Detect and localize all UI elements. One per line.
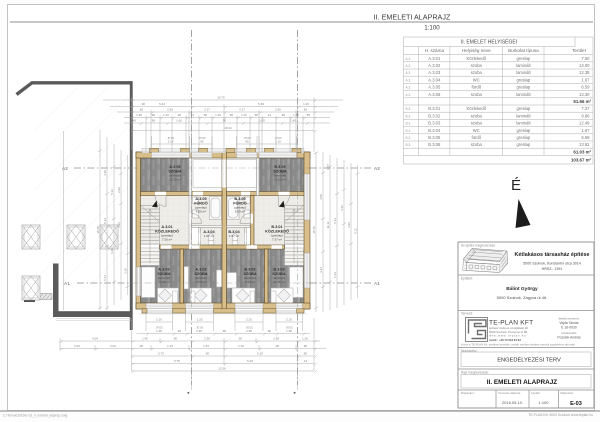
- svg-text:B.3.03: B.3.03: [428, 121, 441, 126]
- svg-text:1.10: 1.10: [241, 113, 247, 117]
- svg-text:C:\Tervek\2016\E-03_II_emeleti: C:\Tervek\2016\E-03_II_emeleti_alaprajz.…: [3, 414, 68, 418]
- svg-text:13.92: 13.92: [579, 142, 590, 147]
- svg-text:Vajda Tamás: Vajda Tamás: [559, 321, 579, 325]
- svg-text:szoba: szoba: [471, 70, 483, 75]
- svg-text:Rajzszám:: Rajzszám:: [461, 391, 475, 395]
- svg-text:A1: A1: [64, 281, 70, 287]
- svg-text:5.43: 5.43: [247, 359, 253, 363]
- svg-text:greslap: greslap: [517, 56, 531, 61]
- svg-text:.90: .90: [151, 119, 155, 123]
- svg-text:A.3.: A.3.: [406, 71, 412, 75]
- svg-text:B.3.03: B.3.03: [273, 268, 284, 272]
- svg-text:6.59: 6.59: [581, 135, 590, 140]
- svg-text:3.96: 3.96: [117, 222, 121, 228]
- svg-text:.90: .90: [222, 329, 226, 333]
- svg-text:6.29: 6.29: [110, 248, 114, 254]
- svg-text:fürdő: fürdő: [472, 135, 482, 140]
- svg-text:A2: A2: [374, 166, 380, 172]
- svg-text:5.44: 5.44: [159, 102, 165, 106]
- svg-text:7.37: 7.37: [581, 106, 590, 111]
- svg-text:Helyiség neve: Helyiség neve: [462, 48, 491, 53]
- svg-text:B.3.04: B.3.04: [428, 128, 441, 133]
- svg-text:1.48: 1.48: [286, 329, 292, 333]
- svg-text:A.3.: A.3.: [406, 93, 412, 97]
- svg-text:13.30: 13.30: [579, 92, 590, 97]
- svg-text:.90: .90: [281, 113, 285, 117]
- svg-text:1.67 m²: 1.67 m²: [204, 234, 214, 238]
- svg-text:Az építés megnevezése:: Az építés megnevezése:: [461, 243, 496, 247]
- svg-text:2.98: 2.98: [117, 187, 121, 193]
- svg-text:B.3.02: B.3.02: [428, 113, 441, 118]
- svg-text:2.38: 2.38: [196, 329, 202, 333]
- svg-text:12.38: 12.38: [579, 70, 590, 75]
- svg-text:greslap: greslap: [517, 77, 531, 82]
- svg-text:B.3.05: B.3.05: [234, 197, 245, 201]
- svg-text:2.38: 2.38: [204, 337, 210, 341]
- svg-text:A.3.: A.3.: [406, 86, 412, 90]
- svg-text:A.3.06: A.3.06: [428, 92, 441, 97]
- svg-text:szoba: szoba: [471, 92, 483, 97]
- svg-text:laminált: laminált: [516, 121, 531, 126]
- svg-text:90: 90: [245, 140, 249, 144]
- svg-text:1.40: 1.40: [142, 337, 148, 341]
- svg-text:1.60: 1.60: [176, 119, 182, 123]
- svg-text:.87,05: .87,05: [196, 327, 204, 330]
- svg-text:1.40: 1.40: [290, 119, 296, 123]
- svg-text:greslap: greslap: [517, 106, 531, 111]
- svg-text:1.10: 1.10: [238, 344, 244, 348]
- svg-text:.87,05: .87,05: [286, 327, 294, 330]
- svg-text:.87,05: .87,05: [156, 327, 164, 330]
- svg-text:H. száma: H. száma: [425, 48, 445, 53]
- svg-text:II. EMELET HELYISÉGEI: II. EMELET HELYISÉGEI: [461, 39, 517, 46]
- svg-text:51.66 m²: 51.66 m²: [573, 99, 591, 104]
- svg-text:3.17: 3.17: [204, 108, 210, 112]
- svg-text:A terv a TE-PLAN Kft. szellemi: A terv a TE-PLAN Kft. szellemi terméke, …: [461, 343, 575, 347]
- svg-text:mobil : +36 70 618 94 63: mobil : +36 70 618 94 63: [489, 338, 521, 342]
- svg-text:Közlekedő: Közlekedő: [467, 56, 487, 61]
- svg-text:.90: .90: [141, 102, 145, 106]
- svg-text:9.96: 9.96: [581, 113, 590, 118]
- svg-text:greslap: greslap: [517, 85, 531, 90]
- svg-text:6.14: 6.14: [333, 272, 337, 278]
- svg-text:A.3.01: A.3.01: [428, 56, 441, 61]
- svg-text:2.38: 2.38: [273, 337, 279, 341]
- svg-text:103.67 m²: 103.67 m²: [571, 158, 592, 163]
- svg-text:1:100: 1:100: [424, 25, 440, 32]
- svg-text:2.10: 2.10: [275, 140, 281, 144]
- svg-text:fürdő: fürdő: [472, 85, 482, 90]
- svg-text:B.3.: B.3.: [406, 114, 412, 118]
- svg-text:É 16-0030: É 16-0030: [561, 325, 577, 330]
- svg-text:w e b : w w w . t e p l a n .: w e b : w w w . t e p l a n . h u: [489, 333, 526, 337]
- svg-text:Tervező:: Tervező:: [461, 312, 473, 316]
- svg-text:.90: .90: [229, 113, 233, 117]
- svg-text:1.26: 1.26: [303, 102, 309, 106]
- svg-text:9.12: 9.12: [353, 228, 357, 234]
- svg-text:◄: ◄: [186, 390, 190, 395]
- svg-text:11.42: 11.42: [326, 221, 330, 228]
- svg-text:B.3.05: B.3.05: [428, 135, 441, 140]
- svg-text:É: É: [511, 177, 521, 194]
- svg-text:A.3.05: A.3.05: [195, 197, 206, 201]
- svg-text:A.3.03: A.3.03: [428, 70, 441, 75]
- svg-text:B.3.: B.3.: [406, 143, 412, 147]
- svg-text:5.18: 5.18: [257, 352, 263, 356]
- svg-text:13.92 m²: 13.92 m²: [274, 178, 286, 182]
- svg-text:.90: .90: [275, 344, 279, 348]
- svg-text:laminált: laminált: [516, 70, 531, 75]
- svg-text:15.70: 15.70: [96, 226, 100, 234]
- svg-text:B.3.06: B.3.06: [428, 142, 441, 147]
- svg-text:.90: .90: [238, 337, 242, 341]
- svg-text:1.60: 1.60: [259, 119, 265, 123]
- svg-text:Közlekedő: Közlekedő: [467, 106, 487, 111]
- svg-text:2.25: 2.25: [197, 318, 203, 322]
- svg-text:greslap: greslap: [517, 128, 531, 133]
- svg-text:.90: .90: [139, 344, 143, 348]
- svg-text:.60: .60: [303, 108, 307, 112]
- svg-text:Burkolat típusa: Burkolat típusa: [508, 48, 539, 53]
- svg-text:3.17: 3.17: [239, 108, 245, 112]
- svg-text:szoba: szoba: [471, 63, 483, 68]
- svg-text:.60: .60: [139, 108, 143, 112]
- svg-text:6.14: 6.14: [103, 275, 107, 281]
- svg-text:Rajzszám:: Rajzszám:: [561, 391, 575, 395]
- svg-text:laminált: laminált: [516, 63, 531, 68]
- svg-text:A.3.02: A.3.02: [195, 268, 206, 272]
- svg-text:1.48: 1.48: [156, 329, 162, 333]
- svg-text:2.02: 2.02: [74, 344, 80, 348]
- svg-text:5000 Szolnok, Zagyva út 46.: 5000 Szolnok, Zagyva út 46.: [497, 295, 548, 300]
- svg-text:4.04: 4.04: [92, 337, 98, 341]
- svg-text:szoba: szoba: [471, 142, 483, 147]
- svg-text:Kétlakásos társasház építése: Kétlakásos társasház építése: [515, 252, 590, 258]
- svg-text:2.55: 2.55: [167, 108, 173, 112]
- svg-text:B.3.06: B.3.06: [274, 165, 285, 169]
- svg-text:5.14: 5.14: [110, 189, 114, 195]
- svg-text:.14: .14: [303, 359, 307, 363]
- svg-text:1.26: 1.26: [302, 337, 308, 341]
- svg-text:3.47: 3.47: [319, 267, 323, 273]
- svg-text:B.3.02: B.3.02: [244, 268, 255, 272]
- svg-text:.90: .90: [173, 337, 177, 341]
- svg-text:szoba: szoba: [471, 121, 483, 126]
- svg-text:.90: .90: [222, 119, 226, 123]
- svg-text:szoba: szoba: [471, 113, 483, 118]
- svg-text:.87,05: .87,05: [199, 137, 207, 140]
- svg-text:6.59 m²: 6.59 m²: [235, 210, 245, 214]
- svg-text:Bálint György: Bálint György: [506, 286, 538, 292]
- svg-text:B.3.: B.3.: [406, 107, 412, 111]
- svg-text:.90: .90: [177, 113, 181, 117]
- svg-text:1.67: 1.67: [581, 128, 590, 133]
- svg-text:1:100: 1:100: [538, 400, 549, 405]
- svg-text:WC: WC: [473, 77, 480, 82]
- svg-text:.14: .14: [190, 113, 194, 117]
- svg-text:7.50 m²: 7.50 m²: [162, 237, 172, 241]
- svg-text:II. EMELETI ALAPRAJZ: II. EMELETI ALAPRAJZ: [374, 13, 451, 22]
- svg-text:A.3.06: A.3.06: [169, 165, 180, 169]
- svg-text:E-03: E-03: [570, 401, 582, 407]
- svg-text:5.75: 5.75: [158, 352, 164, 356]
- svg-text:HRSZ.: 1391: HRSZ.: 1391: [542, 267, 563, 271]
- svg-text:WC: WC: [473, 128, 480, 133]
- svg-text:Rajz megnevezése:: Rajz megnevezése:: [461, 371, 489, 375]
- svg-text:B.3.: B.3.: [406, 122, 412, 126]
- svg-text:5000 Szolnok, Konstantin utca: 5000 Szolnok, Konstantin utca 3014: [523, 262, 581, 266]
- svg-text:B.3.: B.3.: [406, 129, 412, 133]
- svg-text:1.43: 1.43: [167, 344, 173, 348]
- svg-text:Építtető:: Építtető:: [461, 275, 473, 280]
- svg-text:Pozsiek András: Pozsiek András: [557, 336, 581, 340]
- svg-text:A.3.03: A.3.03: [158, 268, 169, 272]
- svg-text:12.56: 12.56: [218, 367, 226, 371]
- svg-text:5.14: 5.14: [333, 218, 337, 224]
- svg-text:1.10: 1.10: [215, 113, 221, 117]
- svg-text:.90: .90: [205, 352, 209, 356]
- svg-text:90: 90: [200, 140, 204, 144]
- svg-text:A.3.01: A.3.01: [161, 225, 172, 229]
- svg-text:1.48: 1.48: [136, 113, 142, 117]
- svg-text:1.10: 1.10: [163, 113, 169, 117]
- svg-text:1.57: 1.57: [326, 164, 330, 170]
- svg-text:15.70: 15.70: [312, 226, 316, 234]
- svg-text:ENGEDÉLYEZÉSI TERV: ENGEDÉLYEZÉSI TERV: [497, 357, 561, 364]
- svg-text:2.02: 2.02: [110, 344, 116, 348]
- svg-text:A.3.02: A.3.02: [428, 63, 441, 68]
- svg-text:TE-PLAN Kft. 5000 Szolnok www: TE-PLAN Kft. 5000 Szolnok www.teplan.hu: [528, 413, 593, 417]
- svg-text:A.3.: A.3.: [406, 64, 412, 68]
- svg-text:19.70: 19.70: [217, 96, 225, 100]
- svg-text:.87,05: .87,05: [244, 137, 252, 140]
- svg-text:II. EMELETI ALAPRAJZ: II. EMELETI ALAPRAJZ: [487, 379, 558, 386]
- svg-text:A.3.: A.3.: [406, 57, 412, 61]
- svg-text:B.3.: B.3.: [406, 136, 412, 140]
- svg-text:2.38: 2.38: [246, 329, 252, 333]
- svg-text:.90: .90: [203, 113, 207, 117]
- svg-text:Munkarész:: Munkarész:: [461, 349, 478, 353]
- svg-text:4.55: 4.55: [319, 194, 323, 200]
- svg-text:A2: A2: [62, 166, 68, 172]
- svg-text:.90: .90: [151, 113, 155, 117]
- svg-text:.90: .90: [177, 329, 181, 333]
- svg-text:2.10: 2.10: [286, 318, 292, 322]
- svg-text:7.37 m²: 7.37 m²: [272, 237, 282, 241]
- svg-text:greslap: greslap: [517, 142, 531, 147]
- svg-text:2.10: 2.10: [156, 318, 162, 322]
- svg-text:.90: .90: [303, 352, 307, 356]
- svg-text:3.42: 3.42: [340, 205, 344, 211]
- svg-text:19.34: 19.34: [224, 126, 232, 130]
- svg-text:laminált: laminált: [516, 113, 531, 118]
- svg-text:1.43: 1.43: [203, 344, 209, 348]
- svg-text:felelős tervező:: felelős tervező:: [559, 317, 580, 321]
- svg-text:13.30 m²: 13.30 m²: [169, 178, 181, 182]
- svg-text:Lépték:: Lépték:: [531, 391, 541, 395]
- svg-text:2.10: 2.10: [168, 140, 174, 144]
- svg-text:laminált: laminált: [516, 92, 531, 97]
- svg-text:A1: A1: [374, 281, 380, 287]
- svg-text:2016.05.10.: 2016.05.10.: [502, 400, 523, 405]
- svg-text:12.49: 12.49: [579, 121, 590, 126]
- svg-text:.90: .90: [254, 113, 258, 117]
- svg-text:1.67: 1.67: [581, 77, 590, 82]
- svg-text:5.75: 5.75: [174, 359, 180, 363]
- svg-text:1.40: 1.40: [130, 119, 136, 123]
- svg-text:.87,05: .87,05: [275, 137, 283, 140]
- svg-text:5.14: 5.14: [103, 218, 107, 224]
- svg-text:1.67 m²: 1.67 m²: [229, 234, 239, 238]
- svg-text:.55: .55: [306, 113, 310, 117]
- svg-text:5.39: 5.39: [258, 102, 264, 106]
- svg-text:A.3.04: A.3.04: [428, 77, 441, 82]
- svg-text:7.50: 7.50: [581, 56, 590, 61]
- svg-text:2.25: 2.25: [246, 318, 252, 322]
- svg-text:3.96: 3.96: [347, 222, 351, 228]
- svg-text:6.59 m²: 6.59 m²: [196, 210, 206, 214]
- svg-text:A.3.: A.3.: [406, 78, 412, 82]
- svg-text:Tervezés dátuma:: Tervezés dátuma:: [498, 391, 521, 395]
- svg-text:szerkesztő:: szerkesztő:: [561, 331, 577, 335]
- svg-text:1.48: 1.48: [293, 113, 299, 117]
- svg-text:.87,05: .87,05: [246, 327, 254, 330]
- svg-text:.90: .90: [267, 329, 271, 333]
- svg-text:Terület: Terület: [572, 48, 587, 53]
- svg-text:4.29: 4.29: [103, 170, 107, 176]
- svg-text:.87,05: .87,05: [167, 137, 175, 140]
- svg-text:61.03 m²: 61.03 m²: [573, 150, 591, 155]
- svg-text:greslap: greslap: [517, 135, 531, 140]
- svg-text:13.00: 13.00: [579, 63, 590, 68]
- svg-text:.14: .14: [267, 113, 271, 117]
- svg-text:.90: .90: [303, 344, 307, 348]
- svg-text:A.3.05: A.3.05: [428, 85, 441, 90]
- svg-text:3.29: 3.29: [123, 268, 127, 274]
- svg-text:2.55: 2.55: [275, 108, 281, 112]
- svg-text:►: ►: [293, 390, 297, 395]
- svg-text:B.3.01: B.3.01: [271, 225, 282, 229]
- svg-text:6.59: 6.59: [581, 85, 590, 90]
- svg-text:B.3.01: B.3.01: [428, 106, 441, 111]
